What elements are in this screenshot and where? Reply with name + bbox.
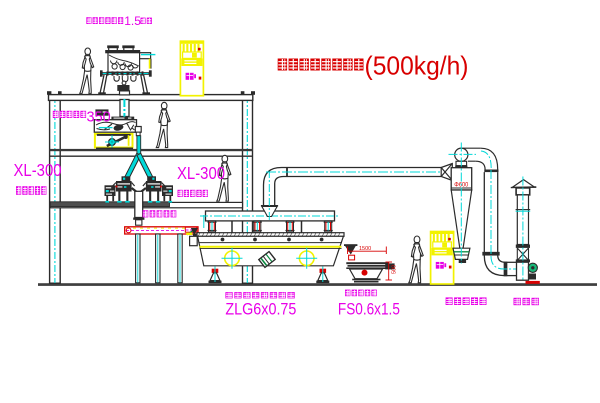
svg-text:1.5: 1.5	[124, 14, 141, 28]
svg-text:350: 350	[87, 109, 111, 125]
svg-text:FS0.6x1.5: FS0.6x1.5	[338, 300, 400, 319]
svg-text:(500kg/h): (500kg/h)	[365, 51, 469, 81]
svg-text:XL-300: XL-300	[177, 163, 225, 183]
svg-text:ZLG6x0.75: ZLG6x0.75	[225, 300, 296, 319]
svg-text:1500: 1500	[359, 246, 371, 252]
svg-text:500: 500	[392, 265, 398, 274]
svg-text:XL-300: XL-300	[14, 160, 62, 180]
